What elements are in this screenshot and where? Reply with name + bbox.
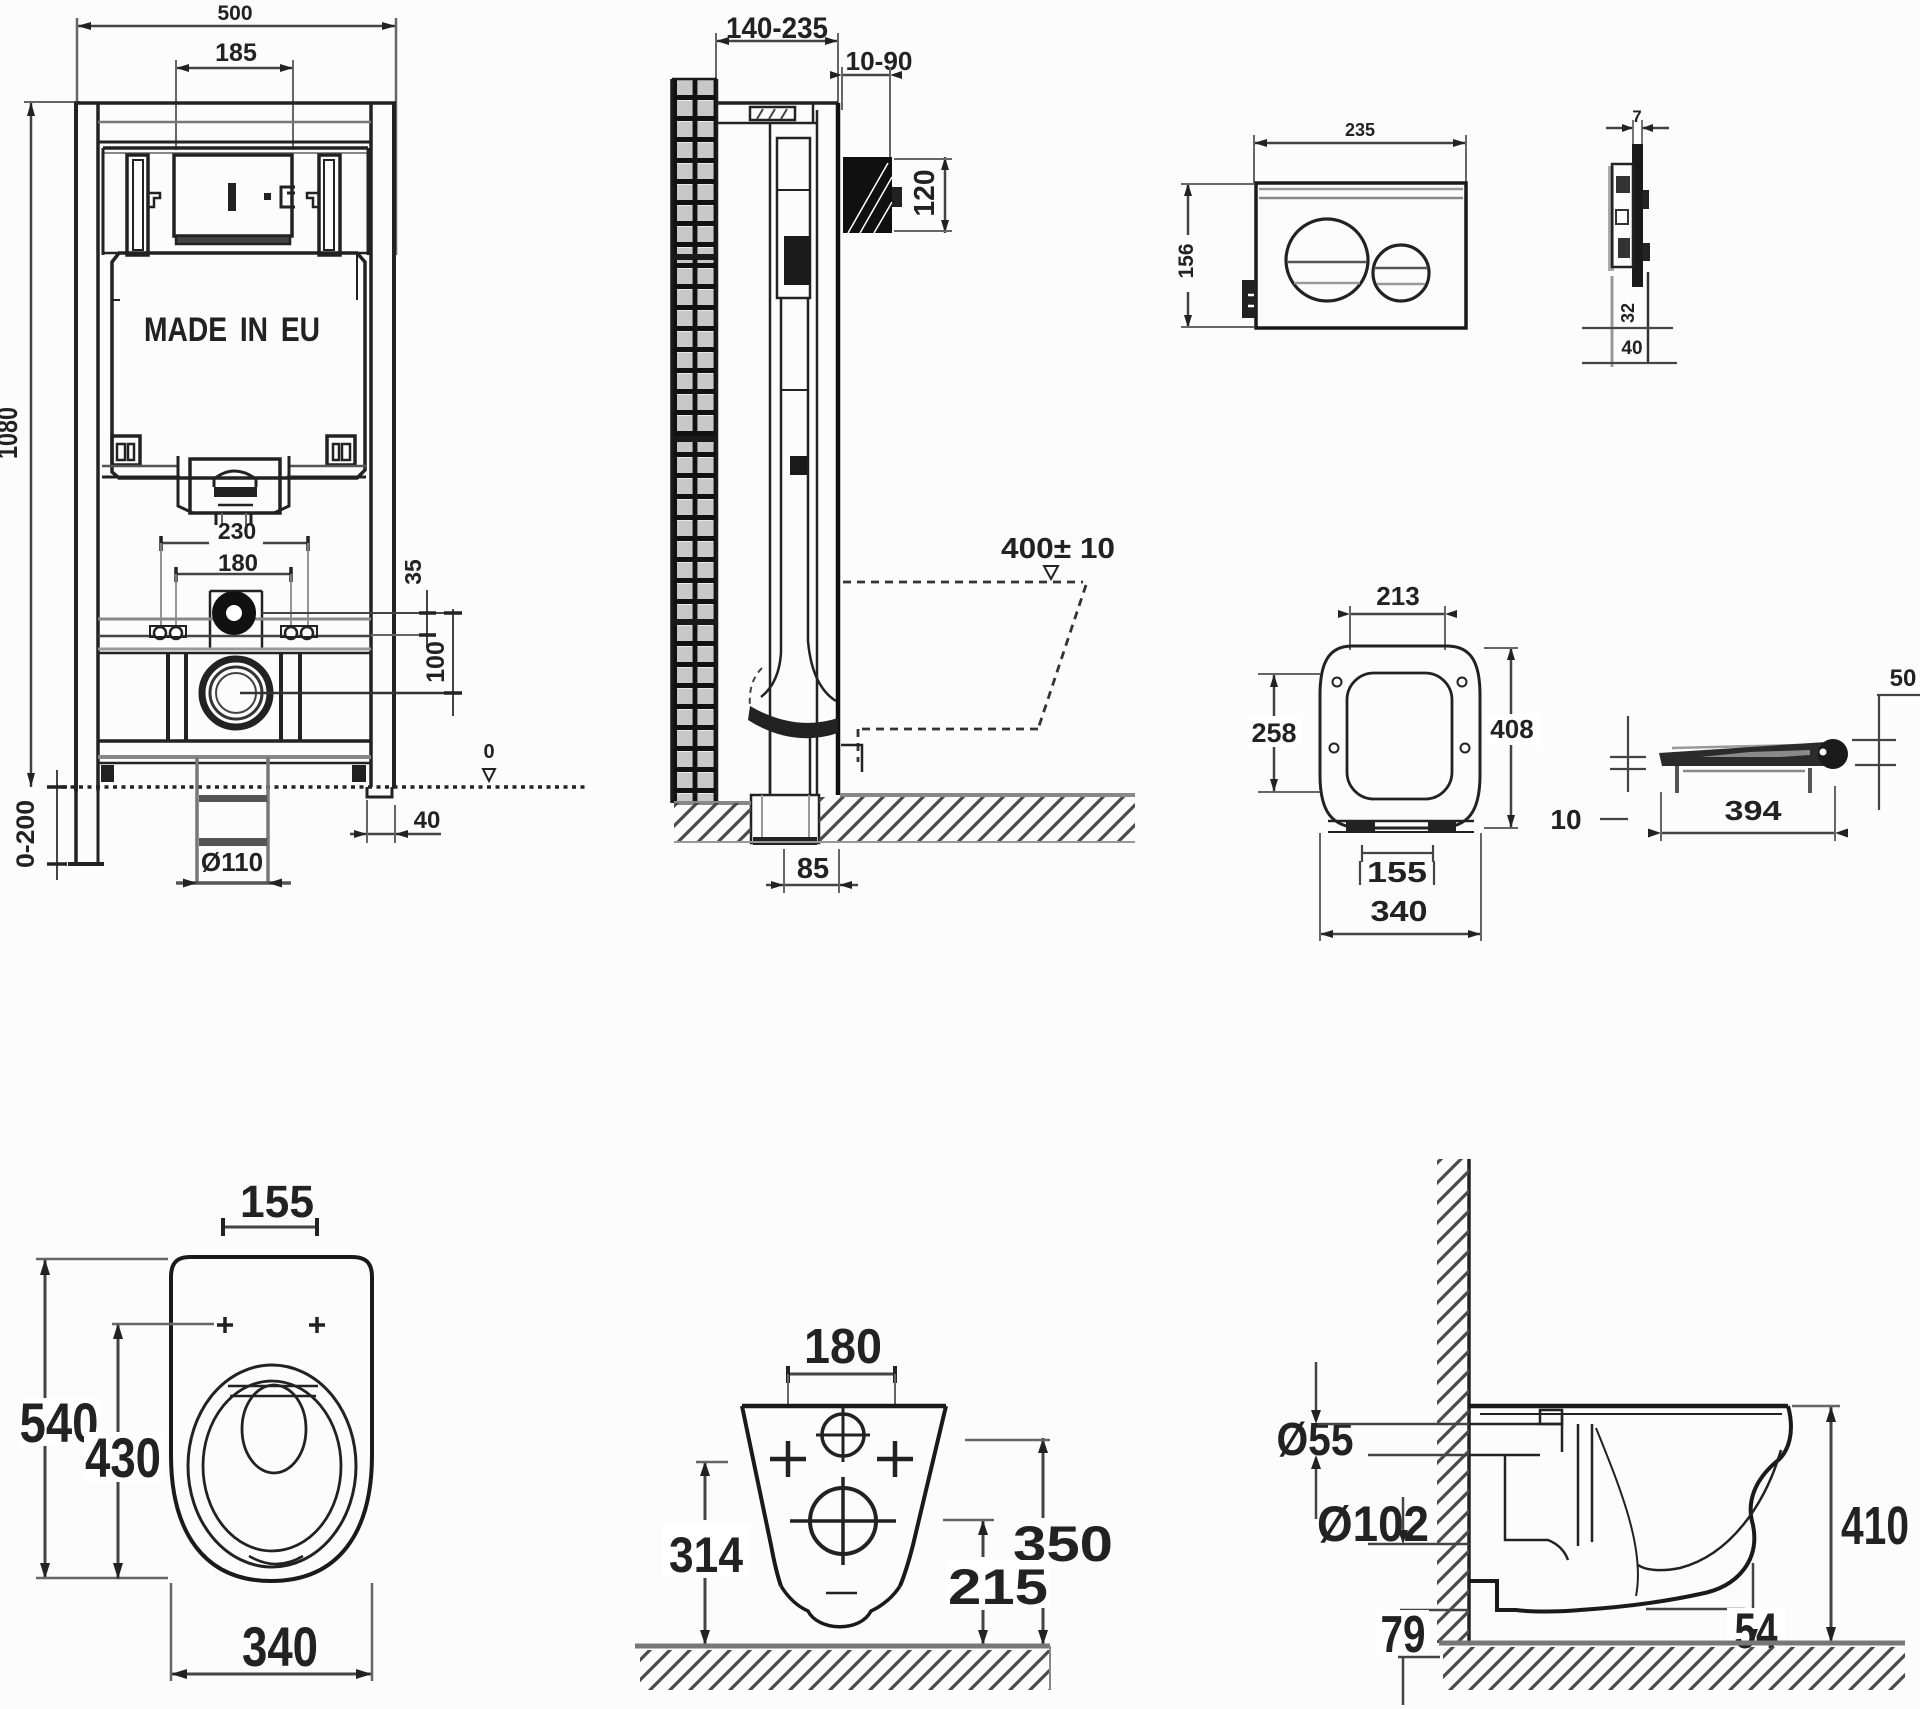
svg-text:Ø110: Ø110 <box>201 847 263 877</box>
svg-text:0: 0 <box>483 741 494 763</box>
svg-text:32: 32 <box>1618 303 1638 323</box>
svg-text:213: 213 <box>1376 581 1419 611</box>
svg-text:40: 40 <box>1621 338 1642 359</box>
svg-text:35: 35 <box>400 559 426 585</box>
svg-text:230: 230 <box>218 518 256 544</box>
svg-text:340: 340 <box>1371 896 1428 928</box>
svg-text:100: 100 <box>422 641 450 683</box>
svg-text:410: 410 <box>1841 1496 1909 1556</box>
svg-text:156: 156 <box>1175 243 1198 278</box>
svg-text:10-90: 10-90 <box>846 46 913 76</box>
svg-text:340: 340 <box>242 1615 318 1678</box>
svg-text:40: 40 <box>414 807 441 834</box>
svg-text:155: 155 <box>1367 857 1427 889</box>
svg-text:314: 314 <box>669 1527 743 1583</box>
svg-text:215: 215 <box>948 1559 1048 1615</box>
svg-text:430: 430 <box>85 1426 161 1489</box>
svg-text:155: 155 <box>240 1176 314 1227</box>
svg-text:394: 394 <box>1725 795 1783 826</box>
svg-text:MADE IN EU: MADE IN EU <box>144 311 320 349</box>
svg-text:0-200: 0-200 <box>12 800 40 868</box>
svg-text:120: 120 <box>909 170 941 217</box>
svg-text:185: 185 <box>215 39 257 67</box>
svg-text:79: 79 <box>1381 1606 1426 1664</box>
svg-text:50: 50 <box>1890 665 1917 692</box>
svg-text:408: 408 <box>1490 714 1533 744</box>
svg-text:1080: 1080 <box>0 407 24 459</box>
svg-text:180: 180 <box>804 1320 882 1374</box>
svg-text:500: 500 <box>217 2 252 25</box>
svg-text:400± 10: 400± 10 <box>1001 533 1115 565</box>
svg-text:258: 258 <box>1251 718 1296 748</box>
svg-text:10: 10 <box>1550 804 1581 835</box>
svg-text:85: 85 <box>797 853 829 885</box>
svg-text:235: 235 <box>1345 120 1375 140</box>
